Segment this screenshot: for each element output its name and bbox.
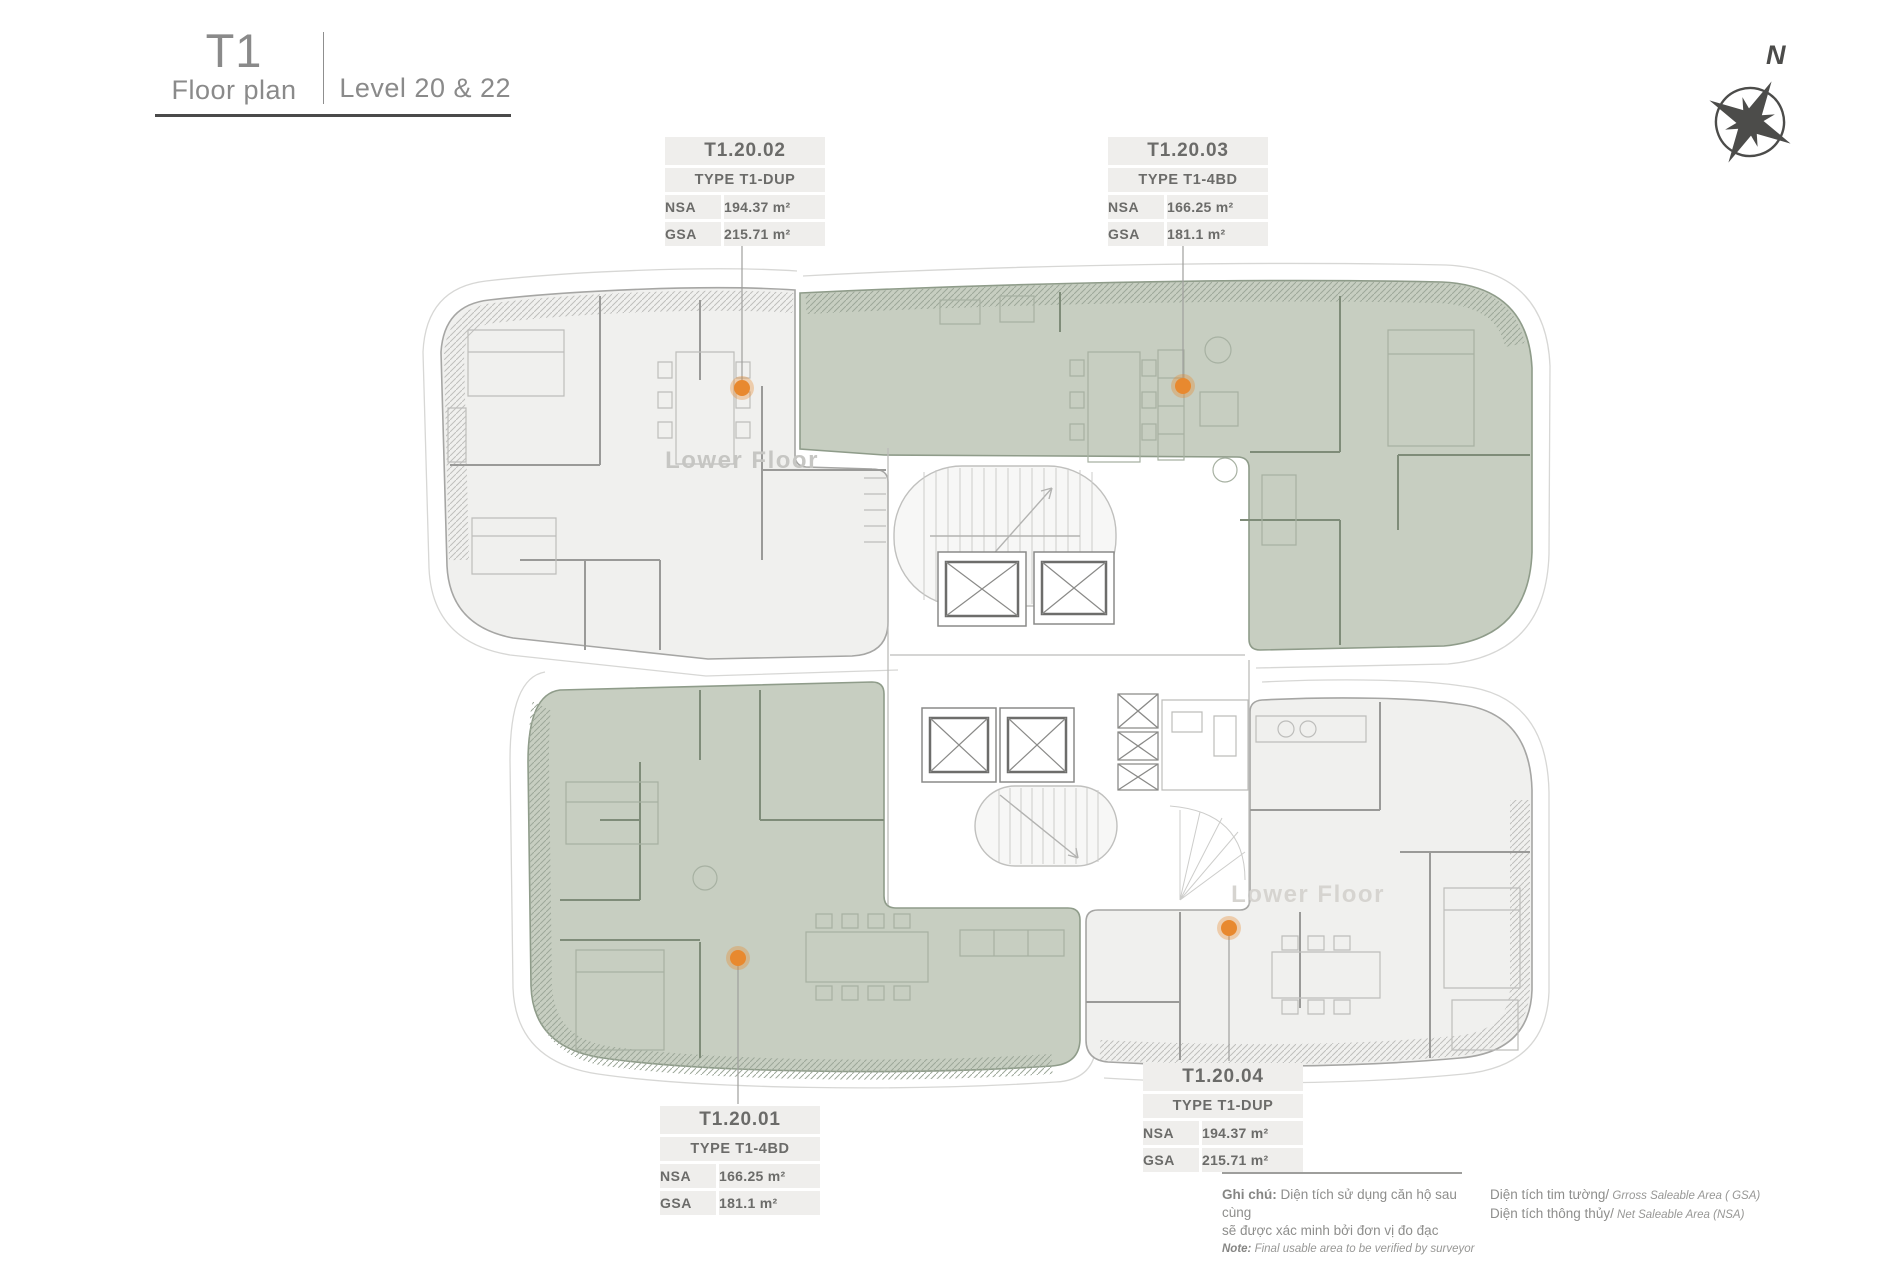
marker-t1-20-01[interactable] [730, 950, 746, 966]
core-service-room [1162, 700, 1248, 790]
unit-t1-20-01-body[interactable] [528, 682, 1080, 1072]
card-t1-20-01-title: T1.20.01 [660, 1106, 820, 1134]
card-t1-20-03-title: T1.20.03 [1108, 137, 1268, 165]
card-t1-20-04[interactable]: T1.20.04 TYPE T1-DUP NSA 194.37 m² GSA 2… [1143, 1063, 1303, 1172]
legend-divider [1222, 1172, 1462, 1174]
unit-t1-20-03-body[interactable] [800, 281, 1532, 650]
card-t1-20-03-type: TYPE T1-4BD [1108, 168, 1268, 192]
card-t1-20-01-gsa-label: GSA [660, 1191, 716, 1215]
card-t1-20-01-nsa-label: NSA [660, 1164, 716, 1188]
card-t1-20-01-gsa-value: 181.1 m² [719, 1191, 820, 1215]
building-core [888, 448, 1249, 905]
core-stair-lower [975, 786, 1117, 866]
card-t1-20-04-gsa-label: GSA [1143, 1148, 1199, 1172]
floor-plan-canvas: Lower Floor Lower Floor [0, 0, 1900, 1286]
card-t1-20-02-nsa-label: NSA [665, 195, 721, 219]
card-t1-20-02-type: TYPE T1-DUP [665, 168, 825, 192]
legend-nsa-definition: Diện tích thông thủy/ Net Saleable Area … [1490, 1205, 1790, 1224]
card-t1-20-03-gsa-value: 181.1 m² [1167, 222, 1268, 246]
compass: N [1692, 34, 1818, 174]
title-caption: Floor plan [171, 75, 296, 106]
tower-name: T1 [206, 26, 263, 75]
title-block: T1 Floor plan Level 20 & 22 [155, 26, 511, 117]
level-label: Level 20 & 22 [339, 73, 511, 106]
floor-plan-page: Lower Floor Lower Floor [0, 0, 1900, 1286]
legend-note-line2: sẽ được xác minh bởi đơn vị đo đạc [1222, 1222, 1484, 1240]
card-t1-20-04-nsa-label: NSA [1143, 1121, 1199, 1145]
marker-t1-20-04[interactable] [1221, 920, 1237, 936]
card-t1-20-04-nsa-value: 194.37 m² [1202, 1121, 1303, 1145]
card-t1-20-02-gsa-value: 215.71 m² [724, 222, 825, 246]
legend-note-en: Note: Final usable area to be verified b… [1222, 1240, 1484, 1258]
card-t1-20-04-gsa-value: 215.71 m² [1202, 1148, 1303, 1172]
legend-definitions: Diện tích tim tường/ Grross Saleable Are… [1490, 1186, 1790, 1224]
legend-note-line1: Ghi chú: Diện tích sử dụng căn hộ sau cù… [1222, 1186, 1484, 1222]
card-t1-20-04-type: TYPE T1-DUP [1143, 1094, 1303, 1118]
legend-note: Ghi chú: Diện tích sử dụng căn hộ sau cù… [1222, 1186, 1484, 1258]
core-shafts [1118, 694, 1158, 790]
core-elevator-3 [922, 708, 996, 782]
card-t1-20-01-nsa-value: 166.25 m² [719, 1164, 820, 1188]
unit-t1-20-03[interactable] [800, 281, 1532, 650]
unit-t1-20-01[interactable] [528, 682, 1080, 1072]
card-t1-20-02[interactable]: T1.20.02 TYPE T1-DUP NSA 194.37 m² GSA 2… [665, 137, 825, 246]
marker-t1-20-02[interactable] [734, 380, 750, 396]
compass-rose [1692, 60, 1812, 174]
card-t1-20-03-nsa-value: 166.25 m² [1167, 195, 1268, 219]
card-t1-20-03-nsa-label: NSA [1108, 195, 1164, 219]
marker-t1-20-03[interactable] [1175, 378, 1191, 394]
legend-gsa-definition: Diện tích tim tường/ Grross Saleable Are… [1490, 1186, 1790, 1205]
card-t1-20-04-title: T1.20.04 [1143, 1063, 1303, 1091]
card-t1-20-02-gsa-label: GSA [665, 222, 721, 246]
card-t1-20-03-gsa-label: GSA [1108, 222, 1164, 246]
card-t1-20-01-type: TYPE T1-4BD [660, 1137, 820, 1161]
title-underline [155, 114, 511, 117]
unit-t1-20-02-floor-note: Lower Floor [665, 447, 819, 474]
card-t1-20-01[interactable]: T1.20.01 TYPE T1-4BD NSA 166.25 m² GSA 1… [660, 1106, 820, 1215]
card-t1-20-02-title: T1.20.02 [665, 137, 825, 165]
compass-north-label: N [1766, 40, 1786, 70]
core-elevator-2 [1034, 552, 1114, 624]
unit-t1-20-03-armchair-2 [1213, 458, 1237, 482]
core-elevator-4 [1000, 708, 1074, 782]
core-elevator-1 [938, 552, 1026, 626]
unit-t1-20-04-floor-note: Lower Floor [1231, 881, 1385, 908]
card-t1-20-02-nsa-value: 194.37 m² [724, 195, 825, 219]
card-t1-20-03[interactable]: T1.20.03 TYPE T1-4BD NSA 166.25 m² GSA 1… [1108, 137, 1268, 246]
